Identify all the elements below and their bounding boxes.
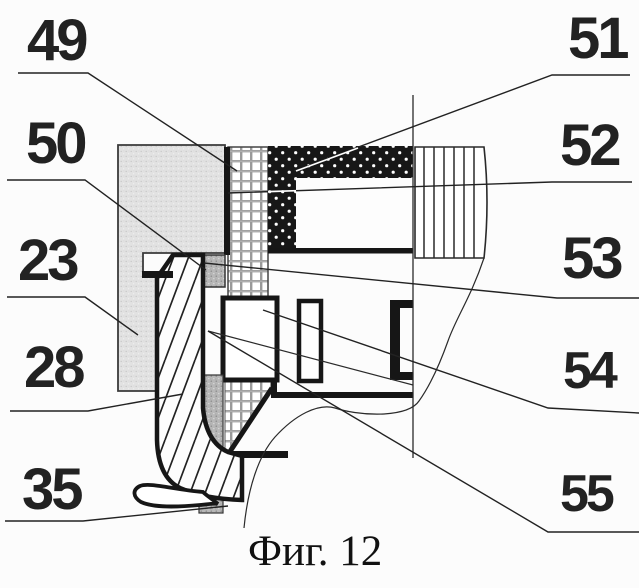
callout-50: 50 xyxy=(26,115,85,173)
vertical-slot xyxy=(299,301,321,381)
callout-52: 52 xyxy=(560,117,619,175)
callout-51: 51 xyxy=(568,10,627,68)
callout-53: 53 xyxy=(562,230,621,288)
callout-28: 28 xyxy=(24,339,83,397)
callout-35: 35 xyxy=(22,461,81,519)
paper-background xyxy=(0,0,639,588)
ribbed-sleeve xyxy=(415,147,487,258)
shelf-connector xyxy=(271,378,277,398)
callout-23: 23 xyxy=(18,232,77,290)
band-bottom-bar xyxy=(268,248,413,254)
callout-49: 49 xyxy=(27,12,86,70)
leader-52-over-black xyxy=(268,191,296,192)
shelf-bar xyxy=(277,392,413,398)
callout-55: 55 xyxy=(560,468,612,520)
drawing xyxy=(0,0,639,588)
dotted-band xyxy=(268,146,413,254)
callout-54: 54 xyxy=(563,345,615,397)
figure-caption: Фиг. 12 xyxy=(248,530,382,573)
notch-ledge xyxy=(142,271,173,278)
figure-canvas: 49 50 23 28 35 51 52 53 54 55 Фиг. 12 xyxy=(0,0,639,588)
